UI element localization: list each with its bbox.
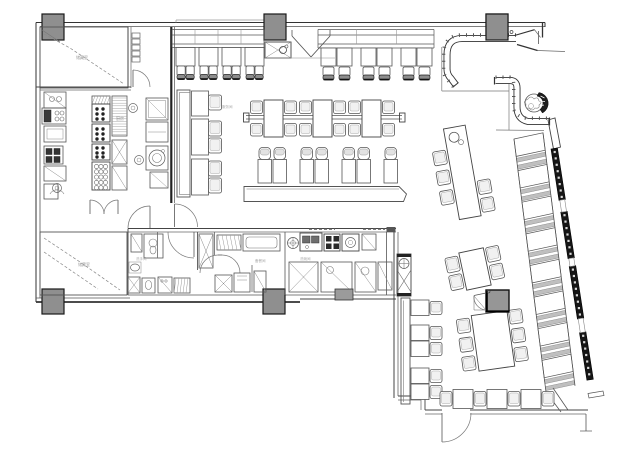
svg-text:储藏室: 储藏室 <box>76 54 88 60</box>
svg-text:厨房: 厨房 <box>116 115 124 121</box>
svg-text:服务间: 服务间 <box>222 104 233 109</box>
svg-text:备餐间: 备餐间 <box>255 258 266 263</box>
svg-text:洗手间: 洗手间 <box>136 256 147 261</box>
svg-text:储藏室: 储藏室 <box>78 261 90 267</box>
svg-text:洗碗间: 洗碗间 <box>300 256 311 261</box>
